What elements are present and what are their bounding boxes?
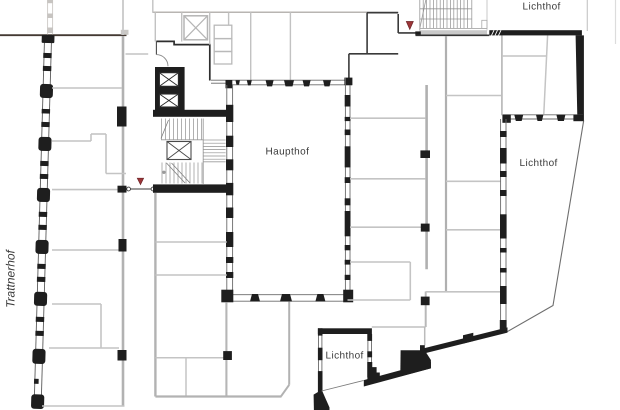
svg-text:Haupthof: Haupthof [266, 147, 310, 158]
svg-text:Trattnerhof: Trattnerhof [4, 248, 18, 307]
svg-text:Lichthof: Lichthof [326, 350, 364, 361]
svg-text:Lichthof: Lichthof [520, 158, 558, 169]
svg-text:Lichthof: Lichthof [523, 2, 561, 13]
